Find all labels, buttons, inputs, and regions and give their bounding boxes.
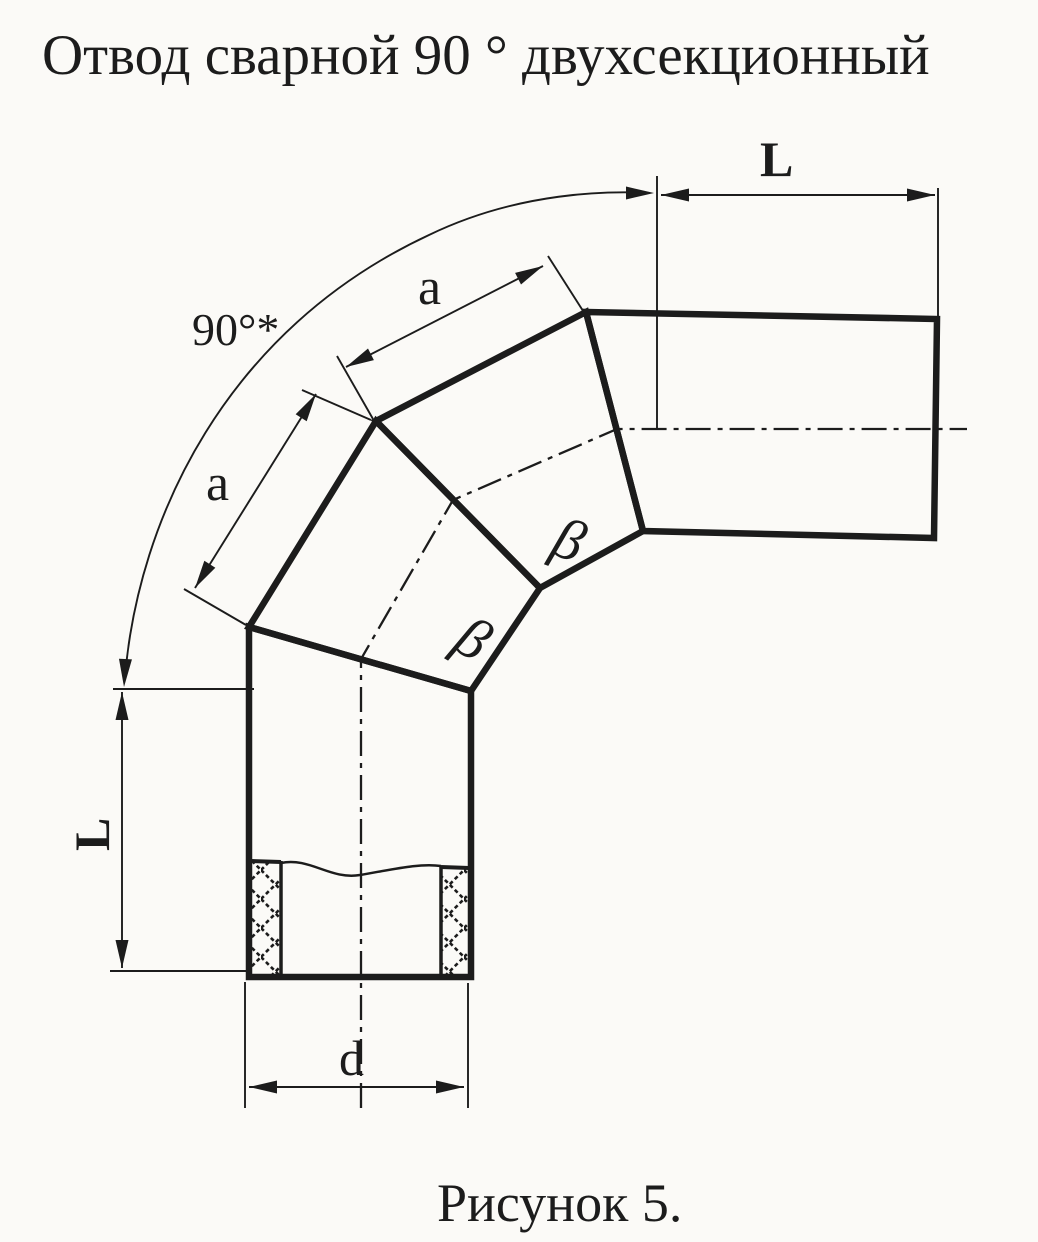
document-page: Отвод сварной 90 ° двухсекционный L L 90… [0,0,1038,1242]
dim-label-angle: 90°* [192,304,279,355]
figure-caption: Рисунок 5. [437,1173,682,1233]
page-title: Отвод сварной 90 ° двухсекционный [42,24,930,87]
hatch-cap-left [251,861,281,862]
hatched-wall-right [441,866,468,977]
dim-label-lower-a: a [206,455,229,512]
figure-canvas: Отвод сварной 90 ° двухсекционный L L 90… [0,0,1038,1242]
dim-label-left-L: L [64,818,120,851]
dim-label-upper-a: a [418,259,441,316]
dim-label-d: d [339,1030,364,1086]
dim-label-top-L: L [760,131,793,187]
hatched-wall-left [251,861,281,976]
hatch-cap-right [441,867,469,868]
